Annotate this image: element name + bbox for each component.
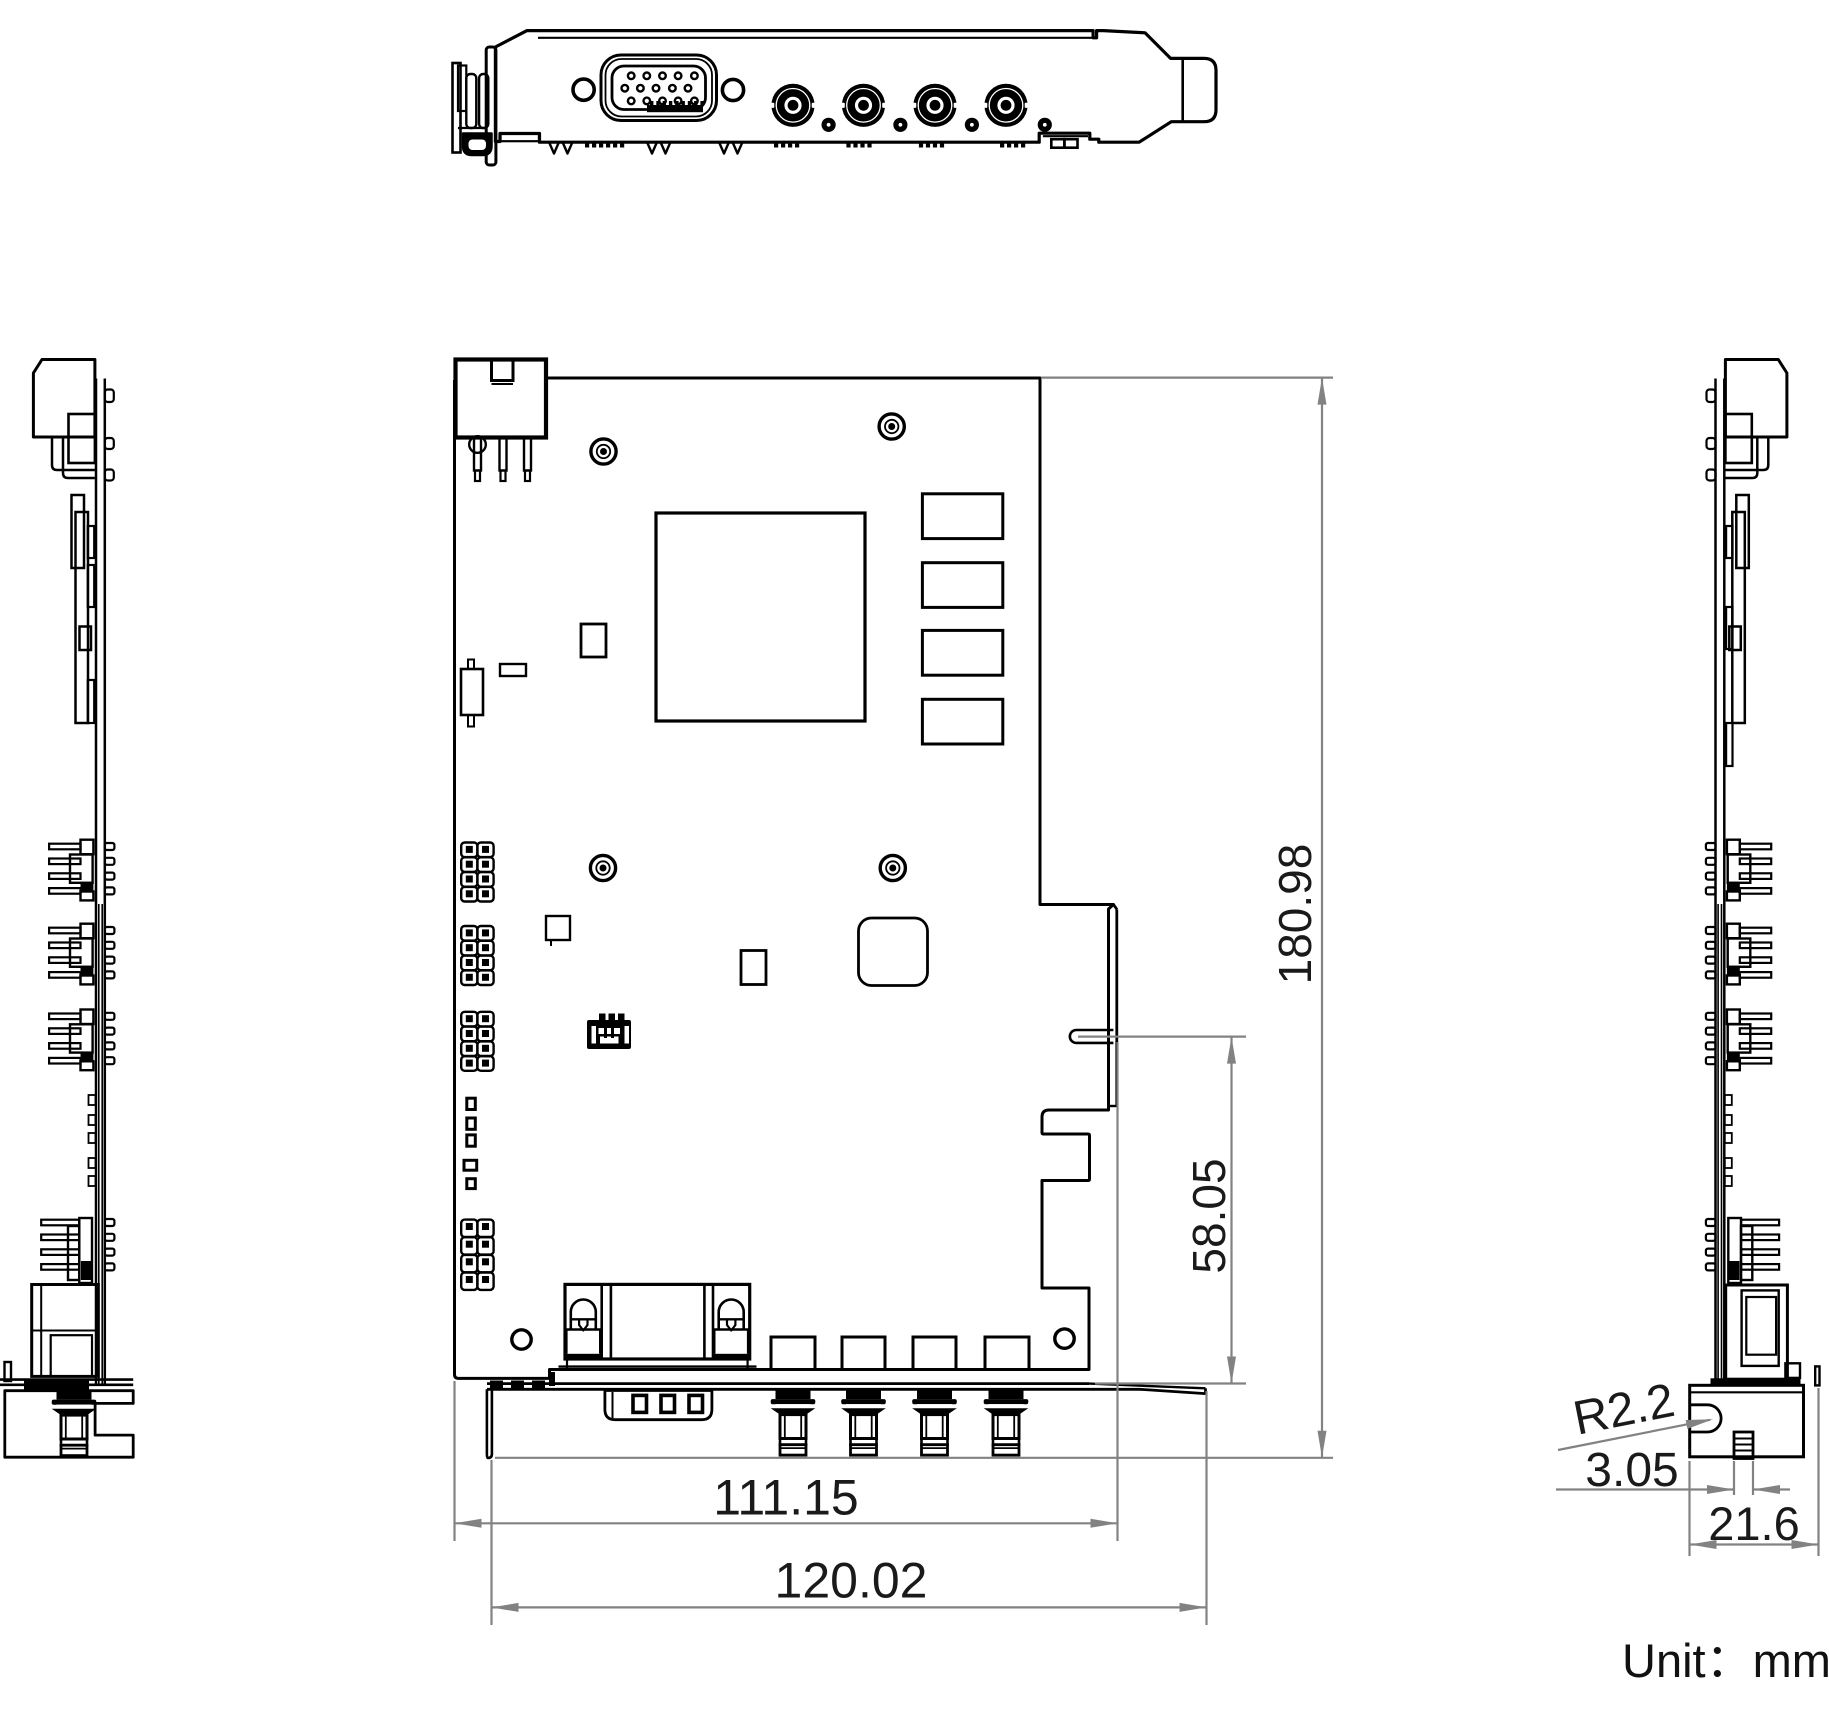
svg-text:111.15: 111.15: [713, 1470, 859, 1526]
svg-text:3.05: 3.05: [1585, 1444, 1678, 1497]
svg-text:58.05: 58.05: [1183, 1158, 1235, 1273]
svg-text:120.02: 120.02: [775, 1553, 928, 1609]
svg-text:21.6: 21.6: [1708, 1497, 1799, 1550]
svg-text:Unit：mm: Unit：mm: [1622, 1634, 1829, 1687]
svg-text:180.98: 180.98: [1269, 844, 1321, 985]
